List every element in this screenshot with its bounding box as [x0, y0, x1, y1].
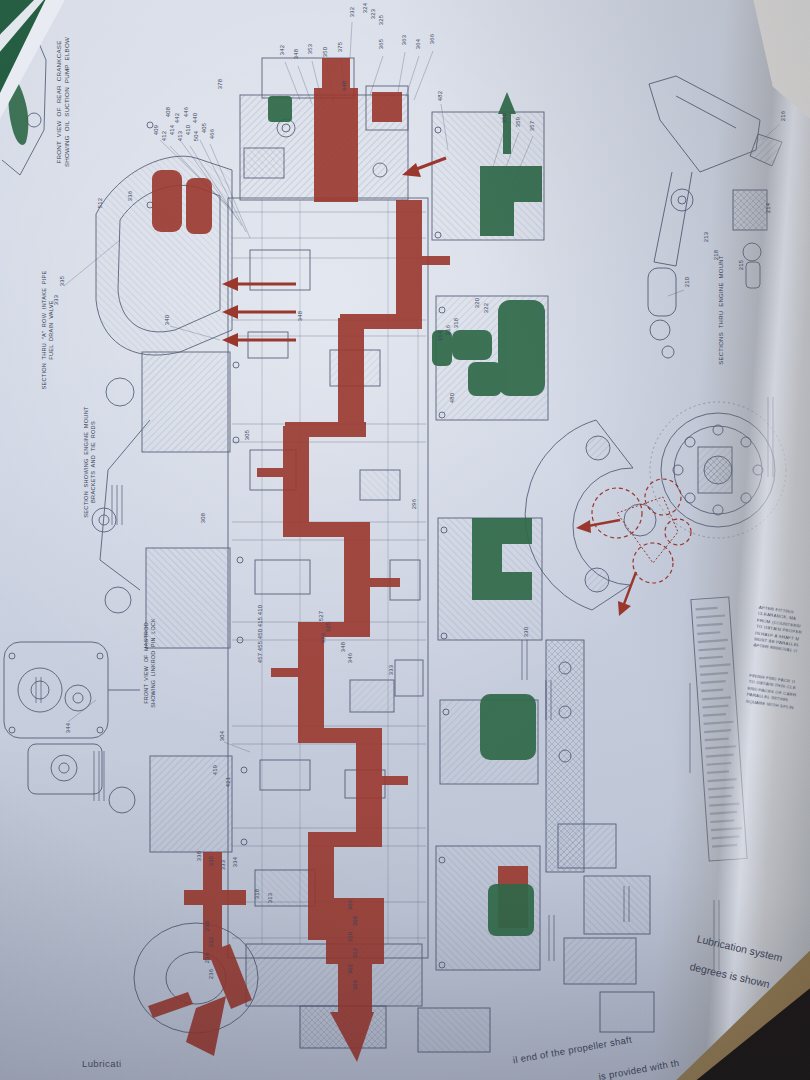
- fitting-note: AFTER FITTINGCLEARANCE, MAFROM (COUNTERW…: [753, 605, 805, 656]
- callout-number: 405: [201, 123, 207, 133]
- callout-number: 457: [257, 653, 263, 663]
- callout-number: 326: [320, 633, 326, 643]
- callout-number: 350: [322, 47, 328, 57]
- callout-number: 230: [204, 921, 210, 931]
- callout-number: 365: [378, 39, 384, 49]
- callout-number: 308: [352, 916, 358, 926]
- callout-number: 340: [164, 315, 170, 325]
- callout-number: 325: [325, 622, 331, 632]
- callout-number: 323: [370, 9, 376, 19]
- callout-number: 358: [501, 113, 507, 123]
- callout-number: 504: [193, 131, 199, 141]
- callout-number: 210: [684, 277, 690, 287]
- callout-number: 333: [388, 665, 394, 675]
- callout-number: 348: [297, 311, 303, 321]
- callout-number: 450: [257, 629, 263, 639]
- callout-number: 316: [445, 325, 451, 335]
- callout-number: 325: [378, 15, 384, 25]
- callout-number: 440: [192, 113, 198, 123]
- callout-number: 442: [174, 113, 180, 123]
- callout-number: 348: [293, 49, 299, 59]
- callout-number: 348: [340, 642, 346, 652]
- callout-number: 410: [185, 125, 191, 135]
- callout-number: 346: [347, 653, 353, 663]
- callout-number: 366: [429, 34, 435, 44]
- callout-number: 408: [165, 107, 171, 117]
- callout-number: 412: [161, 131, 167, 141]
- callout-number: 375: [337, 42, 343, 52]
- callout-number: 480: [449, 393, 455, 403]
- callout-number: 335: [208, 856, 214, 866]
- callout-number: 312: [352, 948, 358, 958]
- callout-number: 527: [318, 611, 324, 621]
- callout-number: 410: [257, 605, 263, 615]
- callout-number: 234: [204, 953, 210, 963]
- callout-number: 314: [437, 331, 443, 341]
- book-page-photo: 3323243233253423483533503753653633643663…: [0, 0, 810, 1080]
- callout-number: 336: [127, 191, 133, 201]
- callout-number: 305: [244, 430, 250, 440]
- figure-caption: FRONT VIEW OF REAR CRANKCASE SHOWING OIL…: [55, 37, 71, 167]
- callout-number: 415: [257, 617, 263, 627]
- callout-number: 353: [307, 44, 313, 54]
- callout-number: 359: [515, 117, 521, 127]
- callout-number: 414: [169, 125, 175, 135]
- callout-number: 419: [212, 765, 218, 775]
- callout-number: 413: [177, 131, 183, 141]
- callout-number: 330: [523, 627, 529, 637]
- callout-number: 313: [267, 893, 273, 903]
- callout-number: 332: [349, 7, 355, 17]
- callout-number: 324: [362, 3, 368, 13]
- callout-number: 342: [279, 45, 285, 55]
- callout-number: 318: [254, 889, 260, 899]
- callout-number: 363: [401, 35, 407, 45]
- callout-number: 213: [703, 232, 709, 242]
- callout-number: 364: [415, 39, 421, 49]
- callout-number: 378: [217, 79, 223, 89]
- figure-caption: FRONT VIEW OF MASTROD SHOWING LINKROD PI…: [143, 618, 157, 708]
- callout-number: 318: [453, 318, 459, 328]
- callout-number: 232: [208, 937, 214, 947]
- bottom-left-partial-text: Lubricati: [82, 1058, 122, 1069]
- callout-number: 310: [347, 932, 353, 942]
- callout-number: 409: [153, 125, 159, 135]
- callout-number: 304: [219, 731, 225, 741]
- callout-number: 306: [347, 900, 353, 910]
- callout-number: 357: [529, 121, 535, 131]
- callout-number: 322: [483, 303, 489, 313]
- callout-number: 421: [225, 777, 231, 787]
- fitting-note: FINISH FWD FACE OTO OBTAIN THIS CLEEND F…: [745, 673, 798, 711]
- figure-caption: SECTION THRU "A" ROW INTAKE PIPE FUEL DR…: [41, 271, 56, 390]
- callout-number: 334: [232, 857, 238, 867]
- callout-number: 296: [411, 499, 417, 509]
- diagram-labels-layer: 3323243233253423483533503753653633643663…: [0, 0, 810, 1080]
- callout-number: 482: [437, 91, 443, 101]
- callout-number: 446: [183, 107, 189, 117]
- callout-number: 455: [257, 641, 263, 651]
- callout-number: 215: [738, 260, 744, 270]
- figure-caption: SECTION SHOWING ENGINE MOUNT BRACKETS AN…: [83, 406, 98, 517]
- callout-number: 216: [780, 111, 786, 121]
- callout-number: 512: [97, 198, 103, 208]
- callout-number: 320: [474, 298, 480, 308]
- callout-number: 304: [352, 980, 358, 990]
- callout-number: 348: [341, 81, 347, 91]
- callout-number: 344: [65, 723, 71, 733]
- figure-caption: SECTIONS THRU ENGINE MOUNT: [718, 255, 726, 364]
- callout-number: 214: [765, 203, 771, 213]
- callout-number: 466: [209, 129, 215, 139]
- callout-number: 335: [59, 276, 65, 286]
- callout-number: 236: [208, 969, 214, 979]
- callout-number: 308: [200, 513, 206, 523]
- callout-number: 302: [347, 964, 353, 974]
- callout-number: 338: [196, 851, 202, 861]
- callout-number: 333: [220, 860, 226, 870]
